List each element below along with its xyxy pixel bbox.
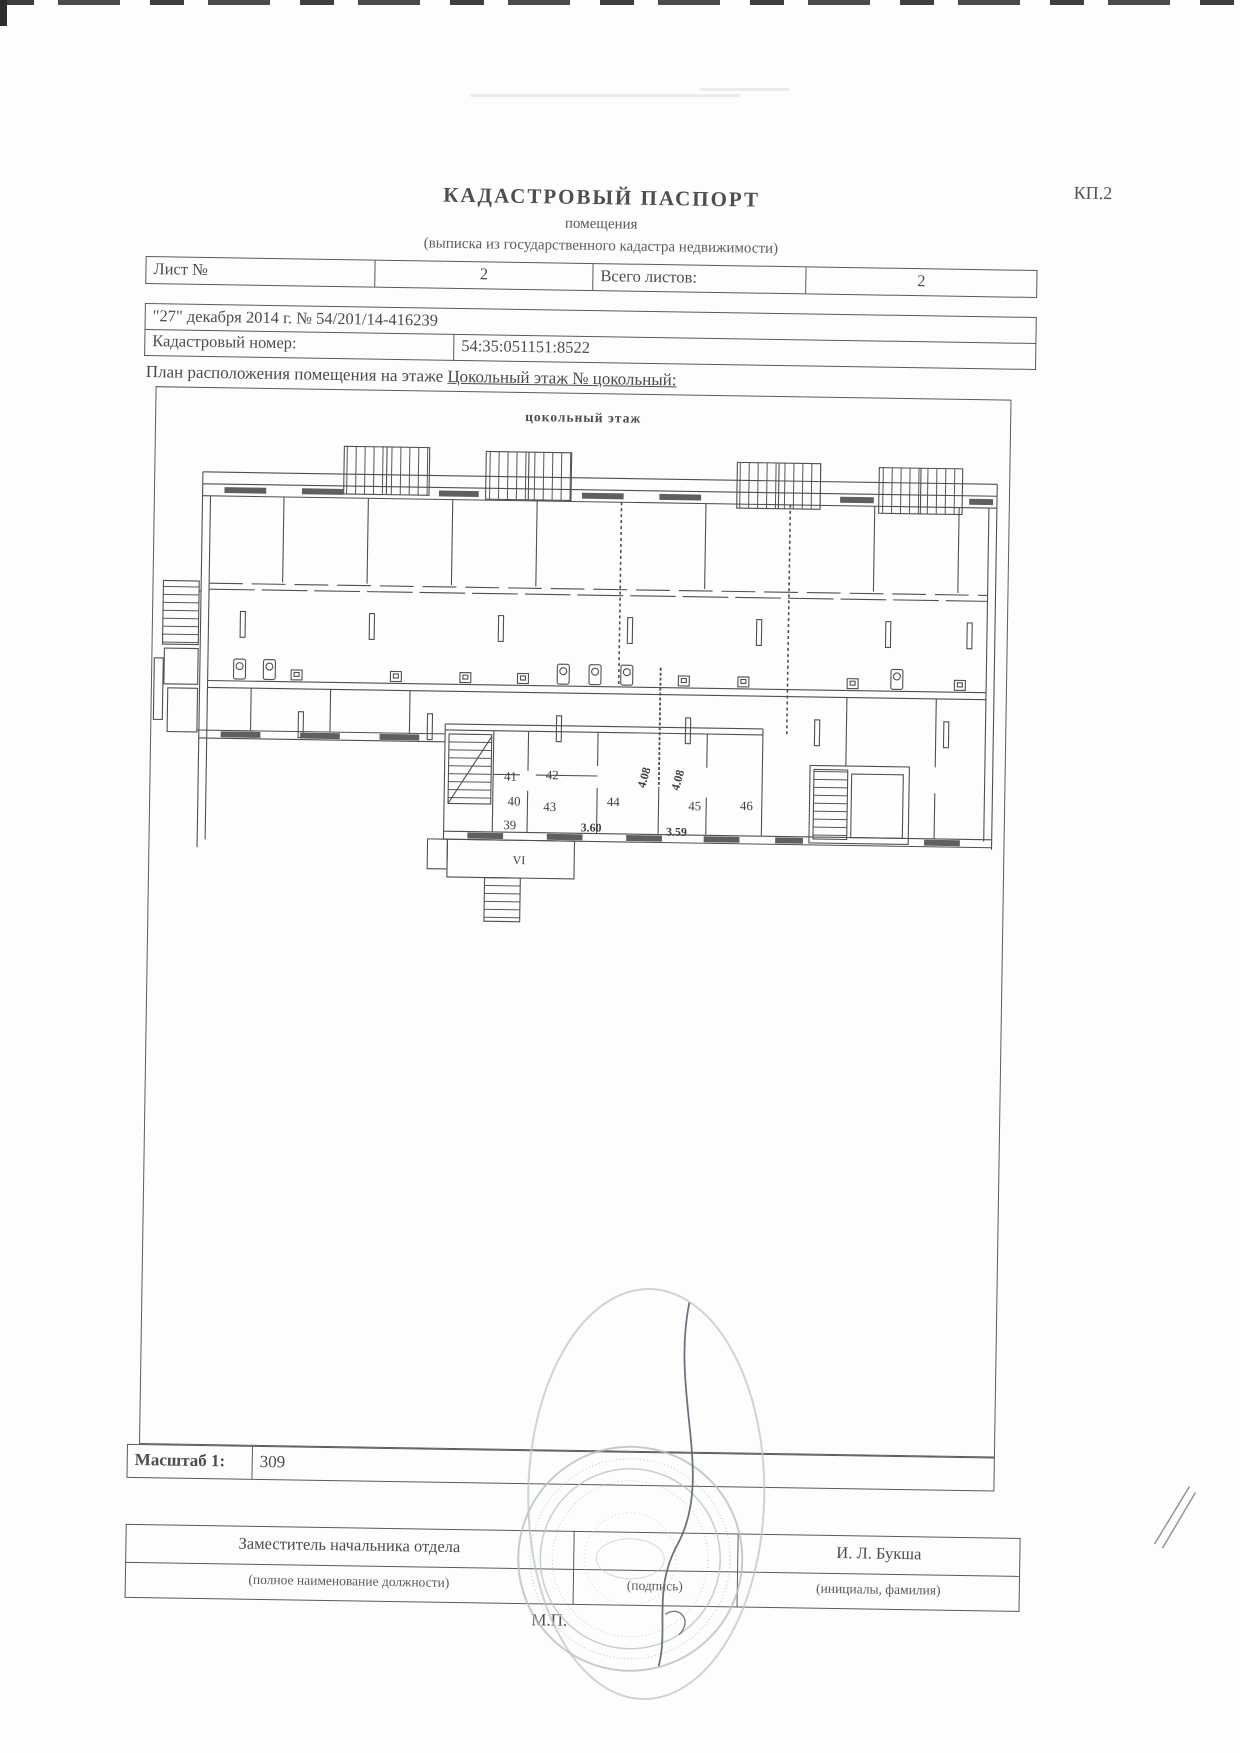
- scale-label: Масштаб 1:: [127, 1445, 251, 1479]
- floor-plan-drawing: 41 42 40 43 44 45 46 39 VI 4.08 4.08 3.6…: [148, 431, 1010, 931]
- upper-partitions: [280, 497, 959, 737]
- room-label-39: 39: [503, 818, 516, 832]
- form-code: КП.2: [1074, 183, 1113, 205]
- cadastral-passport-page: КП.2 КАДАСТРОВЫЙ ПАСПОРТ помещения (выпи…: [0, 0, 1240, 1753]
- plan-caption-prefix: План расположения помещения на этаже: [146, 362, 448, 386]
- cadastral-label: Кадастровый номер:: [145, 329, 453, 360]
- room-label-41: 41: [504, 769, 517, 783]
- dim-359: 3.59: [666, 825, 687, 839]
- document-subtitle: помещения: [321, 212, 881, 238]
- sheet-value: 2: [374, 261, 592, 290]
- room-labels: 41 42 40 43 44 45 46 39 VI: [503, 768, 754, 871]
- corridor-lower-wall: [207, 680, 986, 699]
- total-sheets-label: Всего листов:: [592, 264, 805, 293]
- right-stairwell: [809, 765, 910, 844]
- room-label-44: 44: [607, 795, 621, 809]
- document-content: КП.2 КАДАСТРОВЫЙ ПАСПОРТ помещения (выпи…: [0, 0, 1240, 1753]
- room-label-46: 46: [740, 799, 754, 813]
- corridor-upper-wall: [209, 583, 988, 601]
- document-title: КАДАСТРОВЫЙ ПАСПОРТ: [321, 181, 881, 215]
- plan-caption: План расположения помещения на этаже Цок…: [146, 362, 677, 390]
- official-stamp: [478, 1281, 825, 1726]
- left-entrance: [153, 580, 201, 732]
- sanitary-fixtures: [233, 659, 965, 690]
- pen-stroke-artifact: [1140, 1482, 1201, 1553]
- plan-caption-floor: Цокольный этаж № цокольный:: [447, 367, 676, 390]
- dim-360: 3.60: [581, 820, 602, 834]
- total-sheets-value: 2: [805, 267, 1036, 297]
- pier-stubs: [239, 611, 973, 748]
- sheet-table: Лист № 2 Всего листов: 2: [145, 256, 1037, 298]
- floor-plan-title: цокольный этаж: [156, 403, 1010, 432]
- room-label-45: 45: [688, 799, 701, 813]
- room-label-43: 43: [543, 800, 556, 814]
- stairwell-blocks: [343, 446, 962, 514]
- right-wing-bottom: [761, 696, 994, 848]
- room-label-42: 42: [546, 768, 559, 782]
- left-wing-bottom: [199, 687, 446, 742]
- central-room-cluster: [426, 664, 764, 925]
- room-label-40: 40: [508, 794, 521, 808]
- dim-408-b: 4.08: [668, 768, 687, 792]
- dim-408-a: 4.08: [634, 766, 653, 790]
- sheet-label: Лист №: [146, 257, 374, 287]
- stair-label-vi: VI: [513, 853, 526, 867]
